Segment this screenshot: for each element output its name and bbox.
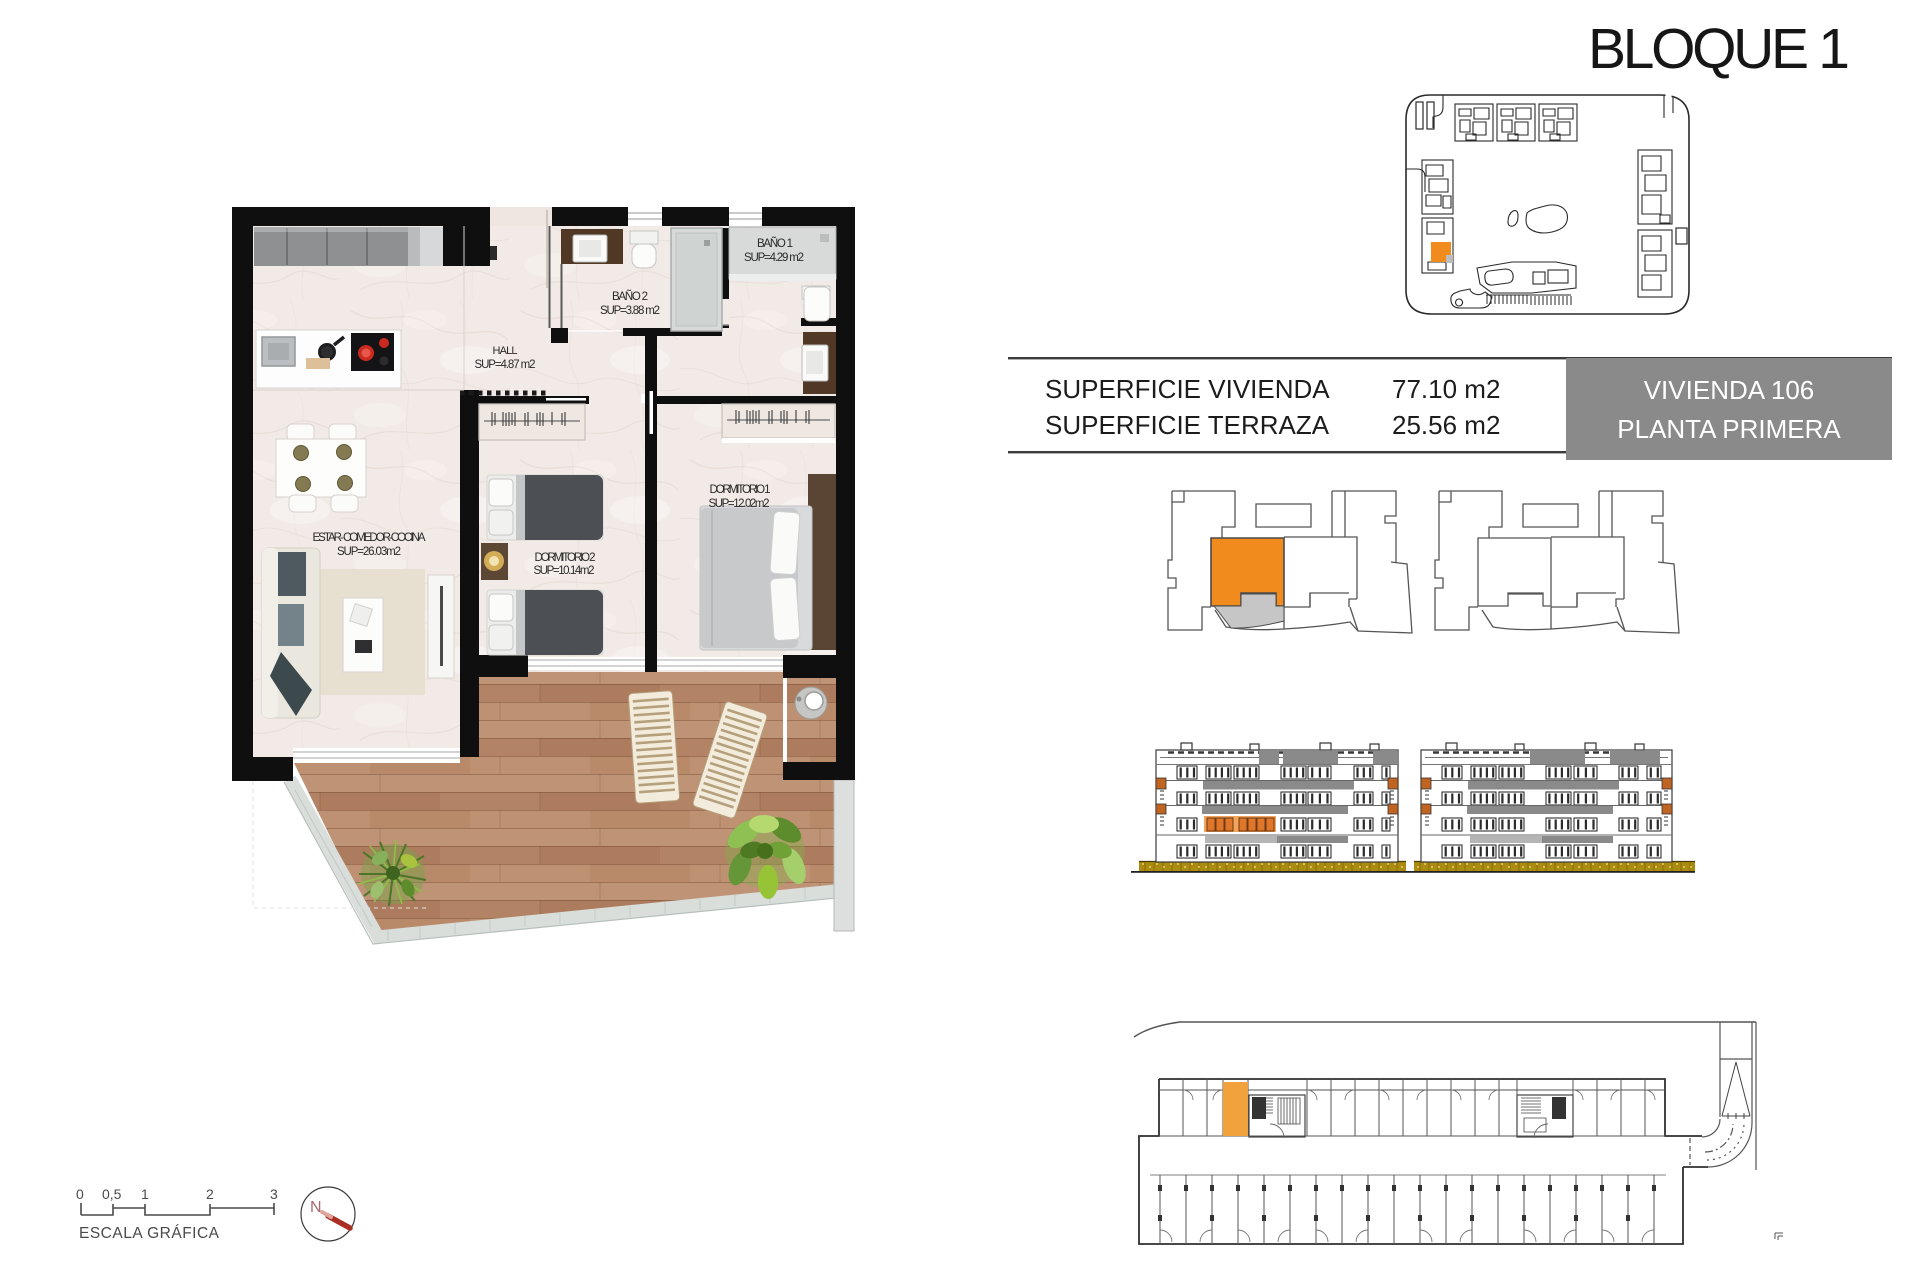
svg-text:SUP=3.88 m2: SUP=3.88 m2 bbox=[600, 305, 660, 317]
svg-text:SUP=4.87 m2: SUP=4.87 m2 bbox=[475, 359, 536, 371]
svg-text:BLOQUE 1: BLOQUE 1 bbox=[1588, 17, 1850, 81]
svg-text:N: N bbox=[310, 1199, 322, 1216]
svg-text:DORMITORIO 1: DORMITORIO 1 bbox=[710, 484, 771, 496]
svg-text:25.56 m2: 25.56 m2 bbox=[1392, 410, 1500, 440]
svg-text:SUP=12.02m2: SUP=12.02m2 bbox=[709, 498, 770, 510]
svg-text:3: 3 bbox=[270, 1186, 278, 1202]
svg-text:2: 2 bbox=[206, 1186, 214, 1202]
svg-text:ESTAR- COMEDOR-COCINA: ESTAR- COMEDOR-COCINA bbox=[313, 532, 426, 544]
svg-text:BAÑO 1: BAÑO 1 bbox=[757, 237, 793, 250]
svg-text:SUPERFICIE TERRAZA: SUPERFICIE TERRAZA bbox=[1045, 410, 1330, 440]
svg-text:DORMITORIO 2: DORMITORIO 2 bbox=[535, 552, 596, 564]
svg-text:SUP=10.14m2: SUP=10.14m2 bbox=[534, 565, 595, 577]
svg-text:77.10 m2: 77.10 m2 bbox=[1392, 374, 1500, 404]
svg-text:0,5: 0,5 bbox=[102, 1186, 122, 1202]
svg-text:VIVIENDA 106: VIVIENDA 106 bbox=[1644, 375, 1815, 405]
svg-text:SUP=4.29 m2: SUP=4.29 m2 bbox=[744, 252, 804, 264]
svg-text:HALL: HALL bbox=[493, 345, 518, 357]
svg-text:1: 1 bbox=[141, 1186, 149, 1202]
svg-text:ESCALA GRÁFICA: ESCALA GRÁFICA bbox=[79, 1225, 220, 1242]
svg-text:BAÑO 2: BAÑO 2 bbox=[612, 290, 648, 303]
svg-text:PLANTA PRIMERA: PLANTA PRIMERA bbox=[1617, 414, 1841, 444]
svg-text:SUP=26.03m2: SUP=26.03m2 bbox=[337, 546, 401, 558]
svg-text:0: 0 bbox=[76, 1186, 84, 1202]
svg-text:SUPERFICIE VIVIENDA: SUPERFICIE VIVIENDA bbox=[1045, 374, 1330, 404]
